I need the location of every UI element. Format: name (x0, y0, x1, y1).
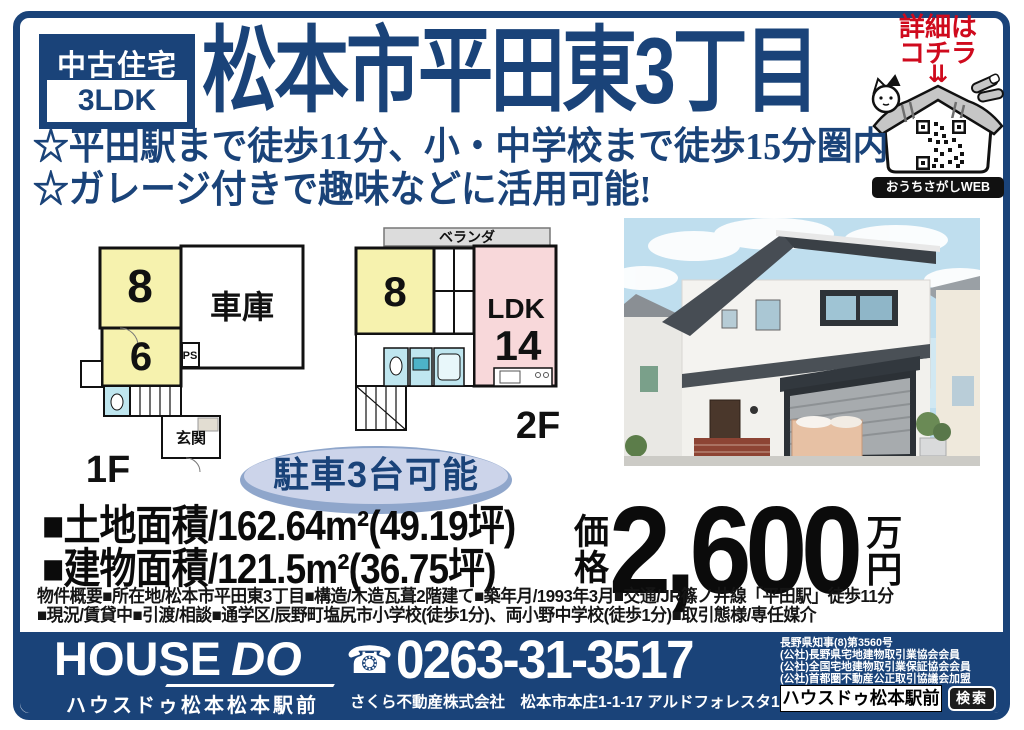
housedo-logo: HOUSEDO (54, 634, 302, 684)
phone-number: 0263-31-3517 (396, 629, 693, 691)
price-unit: 万 円 (866, 514, 902, 588)
search-box: ハウスドゥ松本駅前 (780, 685, 942, 712)
cat-head (873, 76, 899, 112)
badge-layout-label: 3LDK (47, 80, 187, 122)
license-line-4: (公社)首都圏不動産公正取引協議会加盟 (780, 673, 971, 685)
floorplan-2f: ベランダ 8 LDK 14 2F (350, 226, 568, 466)
building-area: ■建物面積/121.5m²(36.75坪) (42, 547, 496, 591)
license-list: 長野県知事(8)第3560号 (公社)長野県宅地建物取引業協会会員 (公社)全国… (780, 637, 971, 685)
flyer-canvas: 中古住宅 3LDK 松本市平田東3丁目 詳細は コチラ ⇊ (0, 0, 1024, 730)
ldk-size-label: 14 (495, 322, 542, 369)
store-name: ハウスドゥ松本松本駅前 (66, 689, 319, 718)
room-8-2f-label: 8 (383, 268, 406, 315)
overview-line-2: ■現況/賃貸中■引渡/相談■通学区/辰野町塩尻市小学校(徒歩1分)、両小野中学校… (37, 606, 816, 625)
company-address: さくら不動産株式会社 松本市本庄1-1-17 アルドフォレスタ1F (350, 690, 789, 712)
land-area: ■土地面積/162.64m²(49.19坪) (42, 504, 515, 548)
floor-1f-label: 1F (86, 449, 130, 491)
license-line-2: (公社)長野県宅地建物取引業協会会員 (780, 649, 971, 661)
qr-house-graphic (868, 72, 1008, 176)
house-photo (624, 218, 980, 466)
search-row: ハウスドゥ松本駅前 検索 (780, 685, 996, 712)
qr-code (914, 118, 966, 170)
details-cta: 詳細は コチラ (868, 14, 1008, 66)
highlight-line-2: ☆ガレージ付きで趣味などに活用可能! (33, 169, 651, 211)
room-6-label: 6 (130, 335, 152, 379)
cat-legs (970, 73, 1003, 102)
ldk-label: LDK (487, 293, 545, 324)
parking-badge-text: 駐車3台可能 (240, 446, 512, 504)
logo-swoosh (165, 684, 335, 687)
phone-block: ☎ 0263-31-3517 (346, 632, 709, 688)
footer-bar: HOUSEDO ハウスドゥ松本松本駅前 ☎ 0263-31-3517 さくら不動… (20, 632, 1004, 713)
highlight-line-1: ☆平田駅まで徒歩11分、小・中学校まで徒歩15分圏内 (33, 126, 888, 168)
entrance-label: 玄関 (176, 429, 206, 447)
ps-label: PS (183, 350, 198, 362)
qr-caption: おうちさがしWEB (872, 177, 1004, 198)
room-8-label: 8 (127, 260, 153, 312)
veranda-label: ベランダ (439, 229, 495, 245)
ground (624, 456, 980, 466)
page-title: 松本市平田東3丁目 (202, 16, 754, 128)
price-label: 価 格 (574, 515, 609, 587)
washroom-1f (81, 361, 102, 387)
details-cta-line1: 詳細は (868, 14, 1008, 40)
license-line-3: (公社)全国宅地建物取引業保証協会会員 (780, 661, 971, 673)
garage-label: 車庫 (210, 289, 274, 325)
license-line-1: 長野県知事(8)第3560号 (780, 637, 971, 649)
phone-icon: ☎ (346, 638, 393, 683)
badge-used-house-label: 中古住宅 (39, 42, 195, 84)
search-button: 検索 (948, 686, 996, 711)
floor-2f-label: 2F (516, 405, 560, 447)
overview-line-1: 物件概要■所在地/松本市平田東3丁目■構造/木造瓦葺2階建て■築年月/1993年… (37, 587, 894, 606)
stairs-1f (130, 386, 181, 416)
property-type-badge: 中古住宅 3LDK (39, 34, 195, 129)
